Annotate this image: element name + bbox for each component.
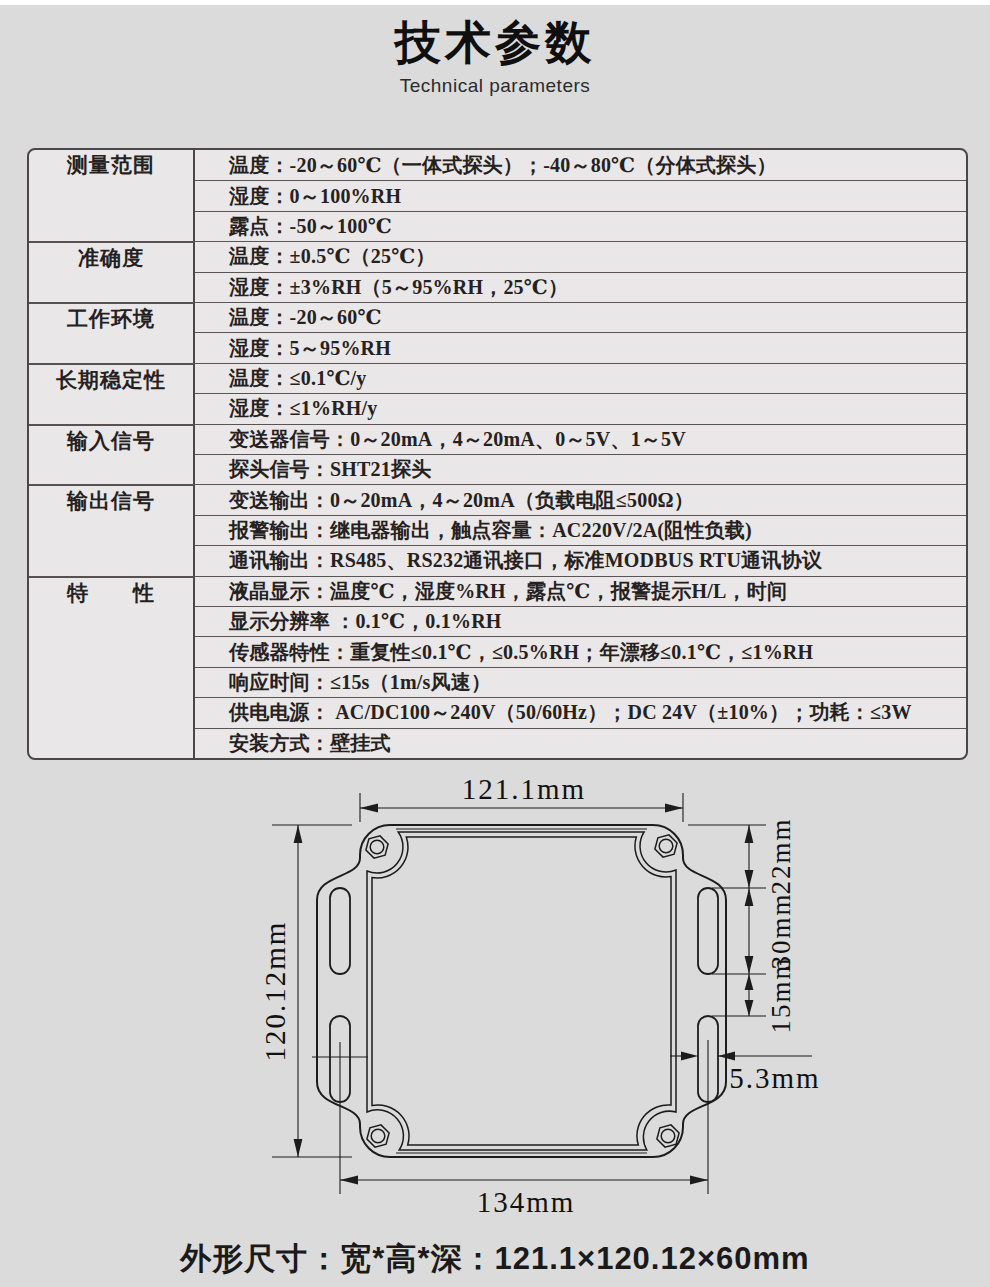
spec-group-label-work-env: 工作环境 xyxy=(29,302,195,363)
spec-row-value: 温度：-20～60℃（一体式探头）；-40～80℃（分体式探头） xyxy=(195,150,966,180)
spec-table: 测量范围 准确度 工作环境 长期稳定性 输入信号 输出信号 特 性 温度：-20… xyxy=(27,148,968,760)
dim-label-bottom-width: 134mm xyxy=(477,1186,576,1218)
spec-group-label-output-signal: 输出信号 xyxy=(29,484,195,575)
dim-30-arrow-top xyxy=(745,888,754,906)
spec-row-value: 变送器信号：0～20mA，4～20mA、0～5V、1～5V xyxy=(195,424,966,454)
dimension-drawing: 121.1mm 120.12mm 22mm 30mm 15mm xyxy=(120,765,880,1225)
dim-22-arrow-bottom xyxy=(745,870,754,888)
spec-group-label-stability: 长期稳定性 xyxy=(29,363,195,424)
spec-row-value: 响应时间：≤15s（1m/s风速） xyxy=(195,667,966,697)
dim-label-slot-width: 5.3mm xyxy=(729,1062,820,1094)
spec-group-label-accuracy: 准确度 xyxy=(29,241,195,302)
spec-row-value: 液晶显示：温度℃，湿度%RH，露点℃，报警提示H/L，时间 xyxy=(195,576,966,606)
spec-group-label-input-signal: 输入信号 xyxy=(29,424,195,485)
spec-row-value: 温度：≤0.1℃/y xyxy=(195,363,966,393)
dim-left-arrow-top xyxy=(294,825,303,843)
spec-row-value: 变送输出：0～20mA，4～20mA（负载电阻≤500Ω） xyxy=(195,484,966,514)
spec-row-value: 湿度：0～100%RH xyxy=(195,180,966,210)
top-strip xyxy=(0,0,990,5)
spec-row-value: 传感器特性：重复性≤0.1℃，≤0.5%RH；年漂移≤0.1℃，≤1%RH xyxy=(195,636,966,666)
page-subtitle: Technical parameters xyxy=(0,75,990,97)
spec-row-value: 安装方式：壁挂式 xyxy=(195,728,966,758)
spec-row-value: 报警输出：继电器输出，触点容量：AC220V/2A(阻性负载) xyxy=(195,515,966,545)
dim-15-arrow-bottom xyxy=(745,1000,754,1016)
mounting-slot-left-upper xyxy=(330,888,350,974)
spec-row-value: 湿度：5～95%RH xyxy=(195,332,966,362)
spec-row-value: 温度：-20～60℃ xyxy=(195,302,966,332)
spec-row-value: 探头信号：SHT21探头 xyxy=(195,454,966,484)
dim-30-arrow-bottom xyxy=(745,956,754,974)
dim-label-top-width: 121.1mm xyxy=(462,773,586,805)
spec-row-value: 露点：-50～100℃ xyxy=(195,211,966,241)
spec-row-value: 湿度：±3%RH（5～95%RH，25℃） xyxy=(195,272,966,302)
dim-bottom-arrow-right xyxy=(690,1176,708,1185)
spec-row-value: 通讯输出：RS485、RS232通讯接口，标准MODBUS RTU通讯协议 xyxy=(195,545,966,575)
dim-left-arrow-bottom xyxy=(294,1139,303,1157)
dim-label-right-top-offset: 22mm xyxy=(766,817,796,894)
screw-bottom-right xyxy=(657,1125,679,1147)
dim-slotwidth-arrow-left xyxy=(681,1052,698,1061)
dim-label-left-height: 120.12mm xyxy=(259,921,291,1062)
screw-bottom-left xyxy=(367,1125,389,1147)
spec-row-value: 供电电源： AC/DC100～240V（50/60Hz）；DC 24V（±10%… xyxy=(195,697,966,727)
spec-group-label-features: 特 性 xyxy=(29,576,195,758)
lid-face-outer-line xyxy=(367,832,676,1150)
spec-row-value: 湿度：≤1%RH/y xyxy=(195,393,966,423)
dim-top-arrow-left xyxy=(360,804,378,813)
screw-top-right xyxy=(655,835,677,857)
dim-label-right-slot-gap: 15mm xyxy=(766,956,796,1033)
outline-dimensions-caption: 外形尺寸：宽*高*深：121.1×120.12×60mm xyxy=(0,1238,990,1280)
dim-bottom-arrow-left xyxy=(340,1176,358,1185)
spec-group-label-measure-range: 测量范围 xyxy=(29,150,195,241)
dim-top-arrow-right xyxy=(665,804,683,813)
dim-15-arrow-top xyxy=(745,974,754,990)
mounting-slot-right-upper xyxy=(698,888,718,974)
lid-face-inner-line xyxy=(372,837,671,1145)
enclosure-outline xyxy=(317,825,726,1157)
spec-row-value: 显示分辨率 ：0.1℃，0.1%RH xyxy=(195,606,966,636)
screw-top-left xyxy=(366,836,388,858)
spec-row-value: 温度：±0.5℃（25℃） xyxy=(195,241,966,271)
page: 技术参数 Technical parameters 测量范围 准确度 工作环境 … xyxy=(0,0,990,1287)
dim-22-arrow-top xyxy=(745,825,754,843)
page-title: 技术参数 xyxy=(0,16,990,68)
header: 技术参数 Technical parameters xyxy=(0,16,990,97)
